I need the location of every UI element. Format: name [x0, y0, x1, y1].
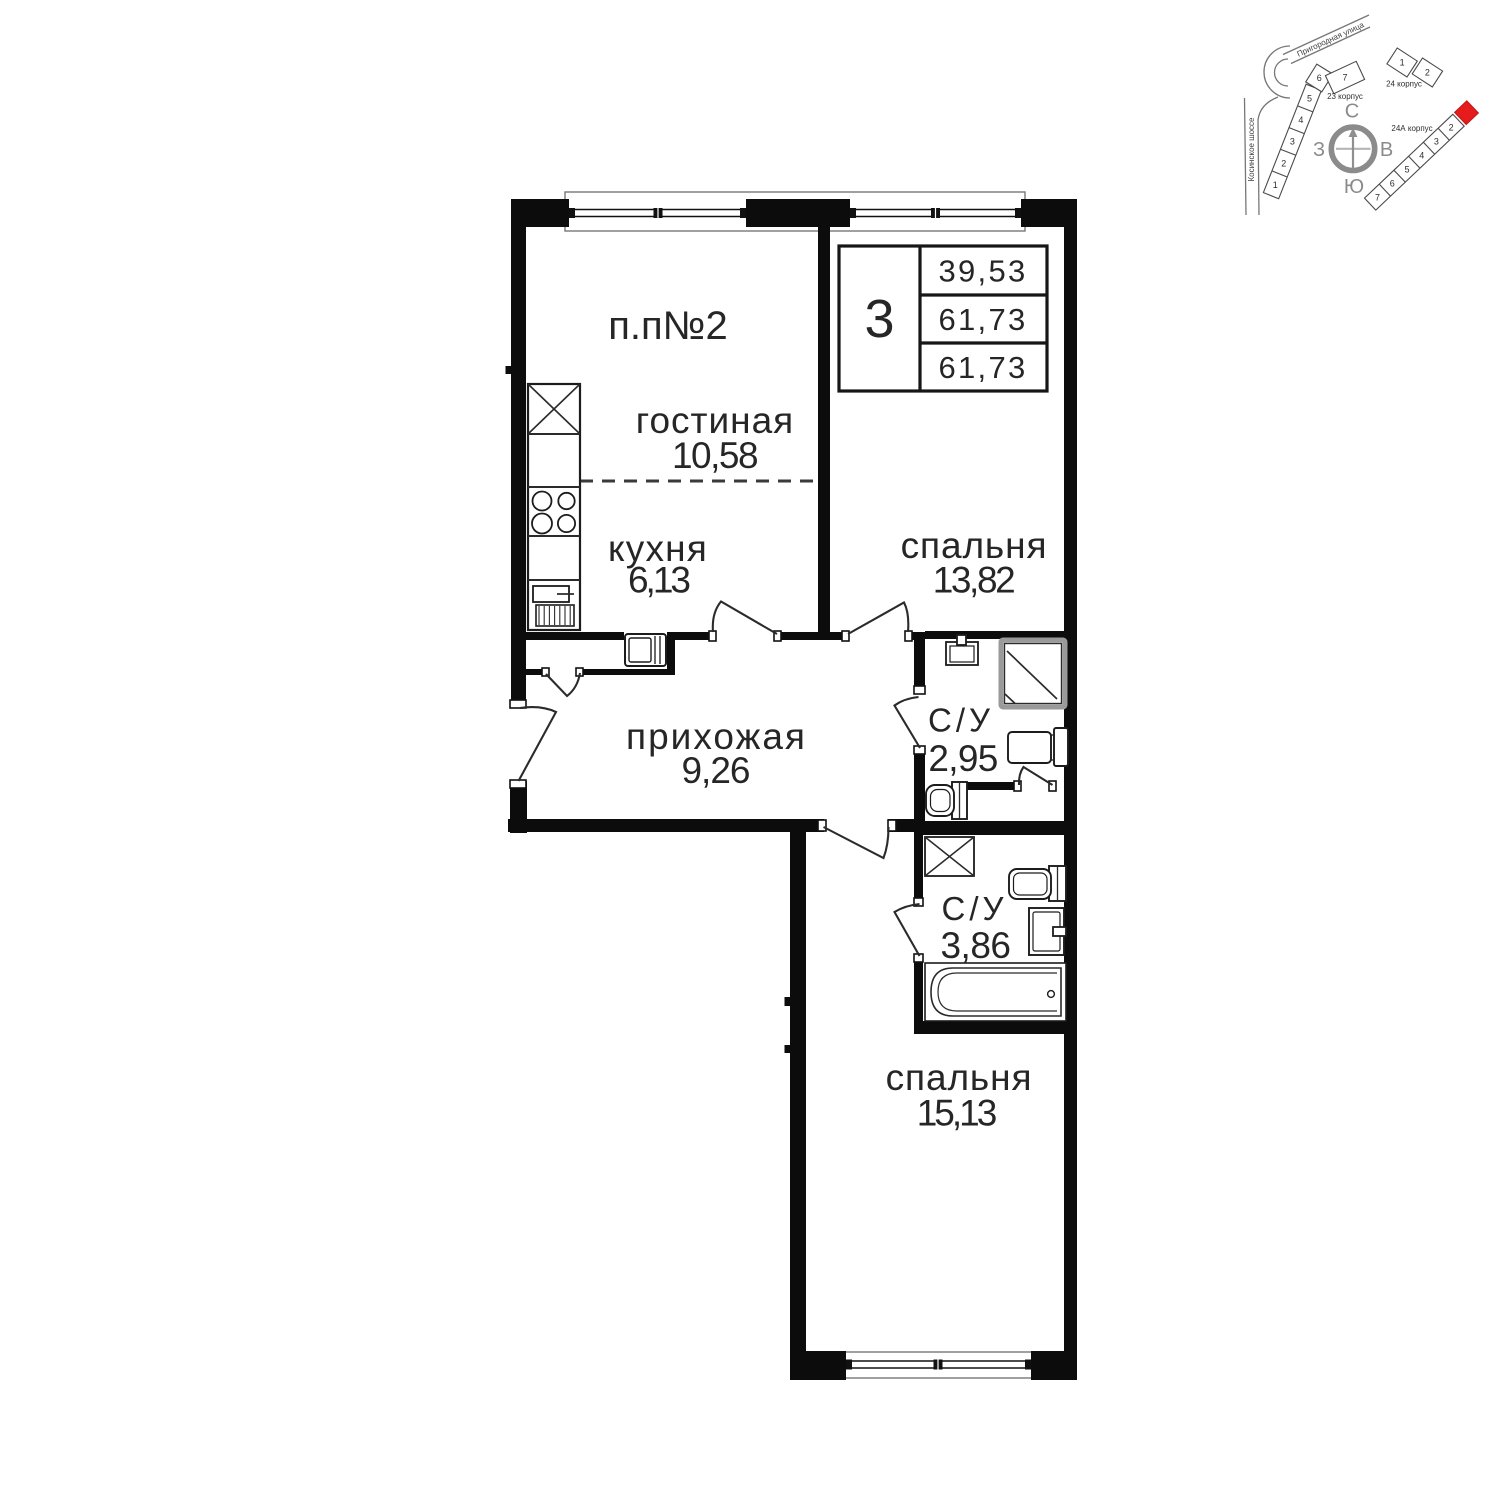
- svg-text:61,73: 61,73: [938, 302, 1027, 337]
- svg-text:10,58: 10,58: [672, 435, 757, 476]
- svg-text:3: 3: [864, 289, 894, 349]
- svg-text:3,86: 3,86: [940, 925, 1010, 966]
- svg-text:24 корпус: 24 корпус: [1386, 80, 1422, 89]
- svg-text:С: С: [1345, 101, 1359, 123]
- svg-text:3: 3: [1434, 136, 1439, 146]
- svg-text:1: 1: [1400, 58, 1405, 68]
- svg-text:п.п№2: п.п№2: [608, 304, 728, 348]
- svg-text:5: 5: [1307, 93, 1312, 103]
- svg-text:39,53: 39,53: [938, 254, 1027, 289]
- svg-text:4: 4: [1419, 150, 1424, 160]
- svg-text:4: 4: [1298, 115, 1303, 125]
- svg-text:13,82: 13,82: [933, 560, 1014, 601]
- svg-text:2: 2: [1425, 68, 1430, 78]
- svg-text:С/У: С/У: [942, 890, 1008, 927]
- svg-text:9,26: 9,26: [681, 750, 749, 791]
- svg-text:5: 5: [1404, 164, 1409, 174]
- svg-text:Ю: Ю: [1344, 176, 1364, 198]
- svg-text:3: 3: [1290, 137, 1295, 147]
- svg-text:15,13: 15,13: [917, 1093, 996, 1134]
- svg-text:З: З: [1313, 139, 1325, 161]
- svg-text:6,13: 6,13: [628, 560, 689, 601]
- svg-text:7: 7: [1342, 73, 1347, 83]
- svg-text:61,73: 61,73: [938, 350, 1027, 385]
- svg-text:С/У: С/У: [928, 702, 994, 739]
- svg-text:6: 6: [1317, 73, 1322, 83]
- svg-text:2,95: 2,95: [928, 738, 997, 779]
- svg-text:1: 1: [1273, 180, 1278, 190]
- svg-text:Косинское шоссе: Косинское шоссе: [1247, 117, 1256, 182]
- svg-text:7: 7: [1375, 192, 1380, 202]
- svg-text:2: 2: [1449, 123, 1454, 133]
- svg-text:В: В: [1380, 139, 1393, 161]
- svg-text:24А корпус: 24А корпус: [1391, 124, 1432, 133]
- svg-text:2: 2: [1281, 158, 1286, 168]
- svg-text:6: 6: [1390, 178, 1395, 188]
